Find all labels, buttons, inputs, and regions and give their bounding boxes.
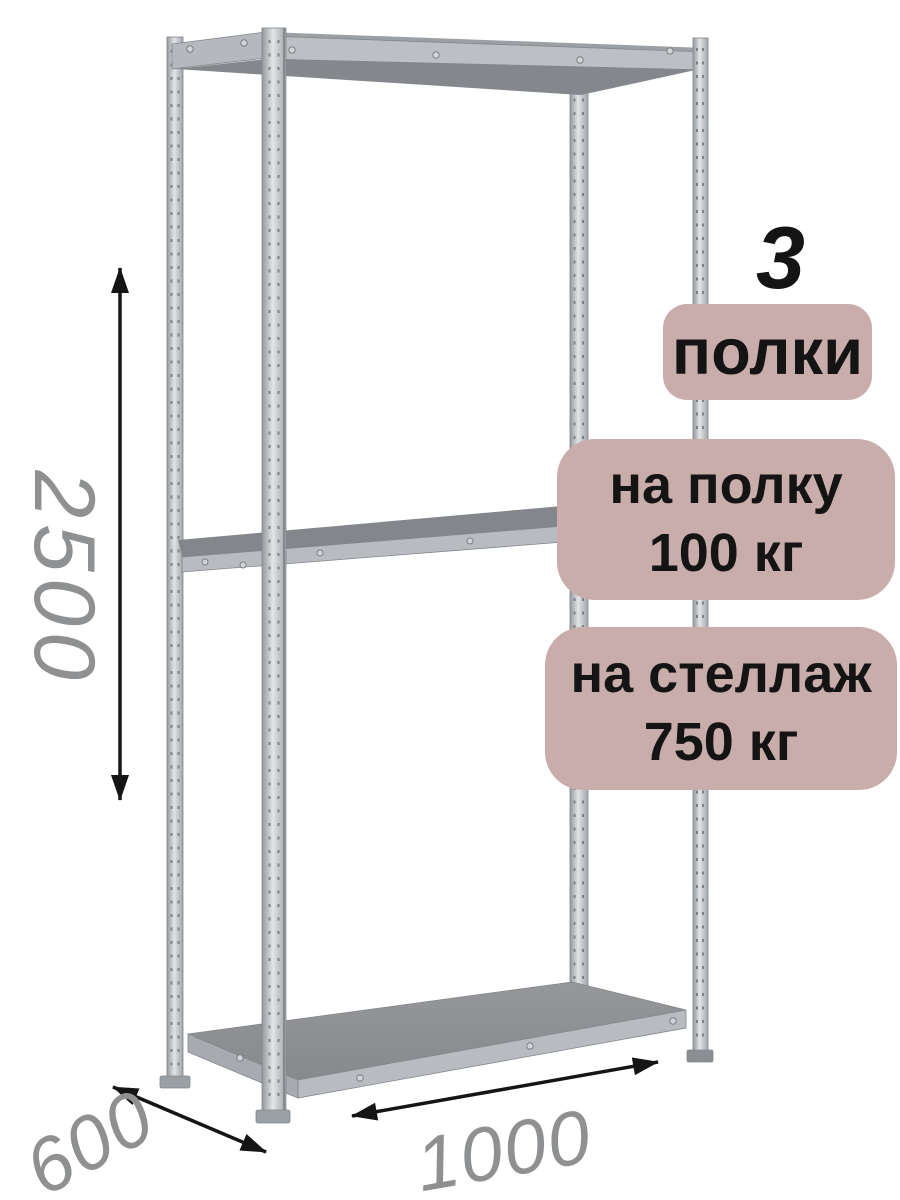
foot-rear-left [160, 1076, 190, 1088]
shelf-load-line1: на полку [557, 452, 895, 520]
rack-illustration: 2500 600 1000 [0, 0, 900, 1200]
shelf-load-badge: на полку 100 кг [557, 439, 895, 600]
shelf-count-badge: полки [663, 304, 872, 400]
shelf-top [172, 32, 707, 95]
post-front-left [256, 28, 290, 1123]
product-image: 2500 600 1000 3 полки на полку 100 кг на… [0, 0, 900, 1200]
shelf-middle [178, 504, 589, 572]
foot-front-left [256, 1110, 290, 1123]
shelf-count-number: 3 [703, 214, 858, 302]
rack-load-line1: на стеллаж [545, 641, 897, 709]
foot-front-right [687, 1050, 713, 1062]
height-dimension-label: 2500 [16, 469, 112, 685]
rack-load-line2: 750 кг [545, 709, 897, 777]
depth-dimension-label: 600 [11, 1074, 168, 1200]
rack-load-badge: на стеллаж 750 кг [545, 627, 897, 790]
shelf-load-line2: 100 кг [557, 520, 895, 588]
width-dimension-label: 1000 [409, 1094, 598, 1200]
shelf-count-label: полки [663, 311, 872, 392]
